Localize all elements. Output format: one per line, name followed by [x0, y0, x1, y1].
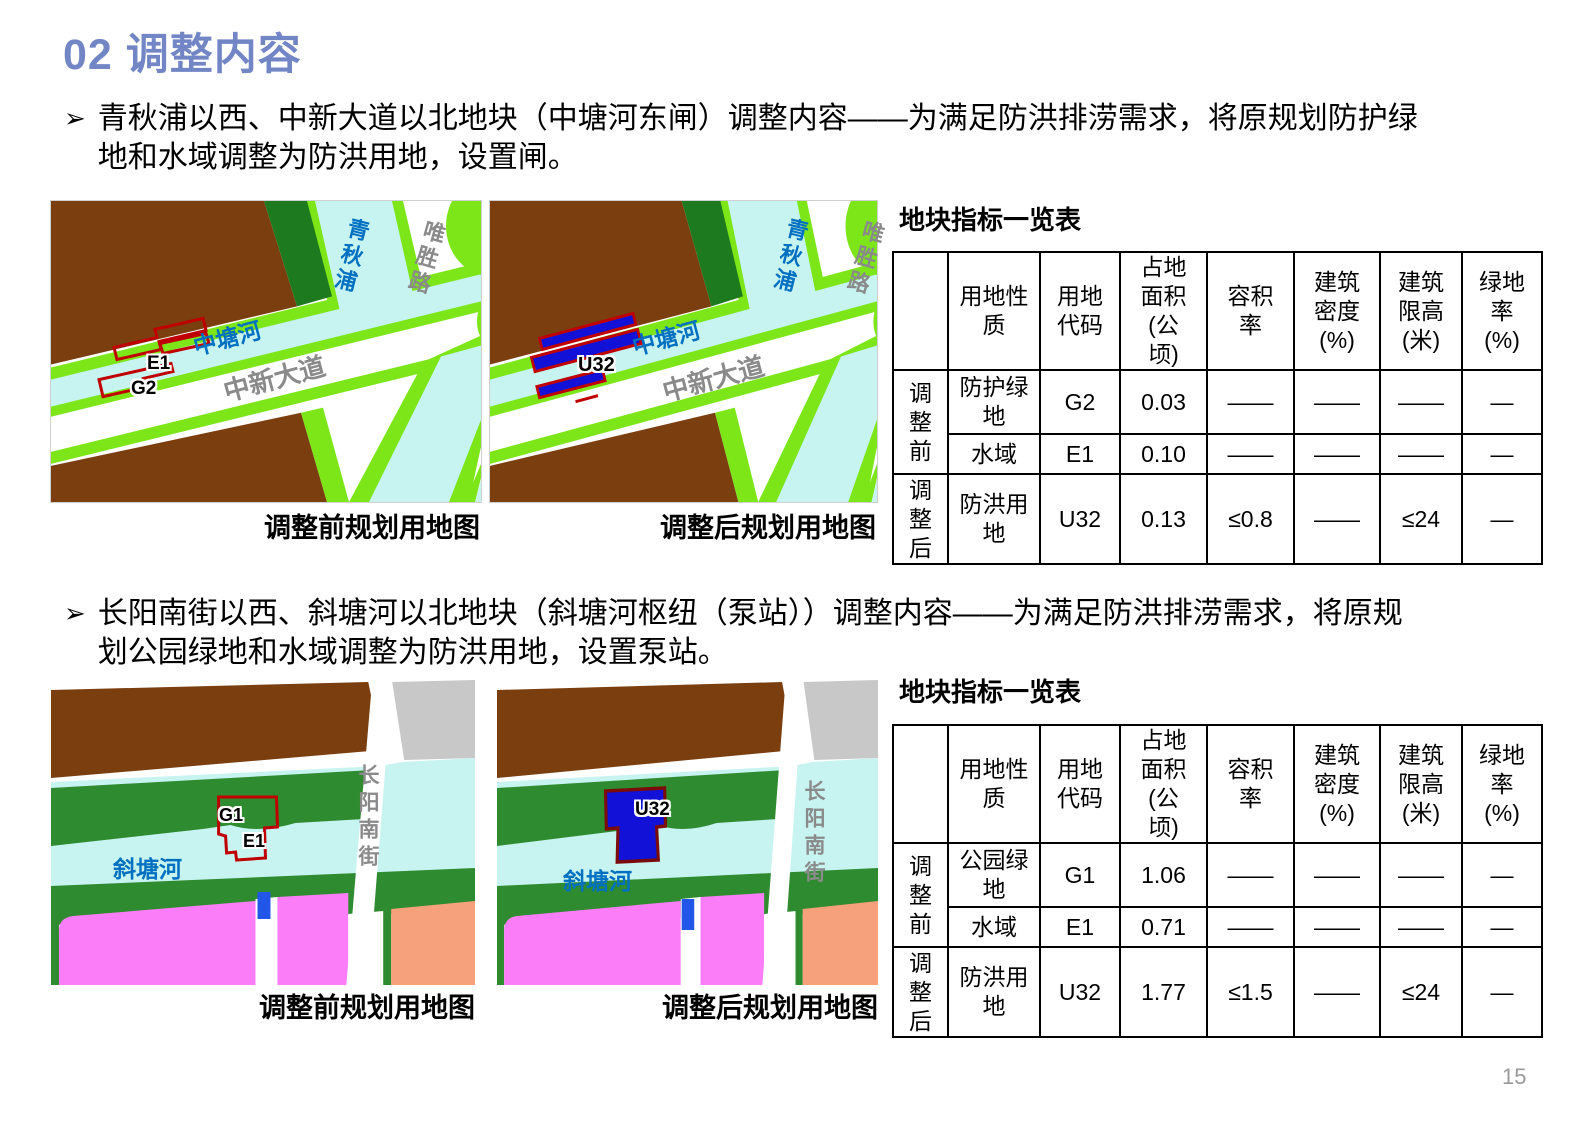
parcel-label-g1: G1 — [219, 805, 243, 826]
table-cell: —— — [1380, 434, 1462, 474]
header-cell: 用地 代码 — [1040, 725, 1120, 843]
map-before-plan-1: 青秋浦 唯胜路 中塘河 中新大道 E1 G2 — [50, 200, 482, 503]
table-cell: —— — [1294, 907, 1380, 947]
table-cell: U32 — [1040, 474, 1120, 564]
table-cell: 0.10 — [1120, 434, 1207, 474]
map-after-plan-2: U32 斜塘河 长阳南街 — [497, 678, 878, 985]
header-cell: 用地性 质 — [948, 725, 1040, 843]
map-before-plan-2: G1 E1 斜塘河 长阳南街 — [51, 678, 475, 985]
page-number: 15 — [1502, 1064, 1526, 1090]
header-cell: 占地 面积 (公 顷) — [1120, 725, 1207, 843]
table-cell: — — [1462, 474, 1542, 564]
table-cell: 0.13 — [1120, 474, 1207, 564]
header-cell: 用地性 质 — [948, 252, 1040, 370]
header-cell: 绿地 率 (%) — [1462, 725, 1542, 843]
parcel-label-u32: U32 — [635, 799, 670, 821]
table-cell: — — [1462, 947, 1542, 1037]
table-cell: —— — [1294, 434, 1380, 474]
caption-before-2: 调整前规划用地图 — [51, 986, 475, 1025]
bullet-arrow-icon: ➢ — [64, 99, 86, 177]
table-cell: — — [1462, 434, 1542, 474]
table-cell: — — [1462, 370, 1542, 434]
table-cell: —— — [1380, 370, 1462, 434]
table-cell: U32 — [1040, 947, 1120, 1037]
table-row: 调 整 后 防洪用 地 U32 1.77 ≤1.5 —— ≤24 — — [893, 947, 1542, 1037]
header-cell: 建筑 密度 (%) — [1294, 725, 1380, 843]
header-cell: 用地 代码 — [1040, 252, 1120, 370]
table-cell: —— — [1294, 947, 1380, 1037]
caption-after-2: 调整后规划用地图 — [497, 986, 878, 1025]
indicator-table-2: 用地性 质 用地 代码 占地 面积 (公 顷) 容积 率 建筑 密度 (%) 建… — [892, 724, 1543, 1038]
table-cell: 1.77 — [1120, 947, 1207, 1037]
table-cell: 1.06 — [1120, 843, 1207, 907]
table-title-2: 地块指标一览表 — [899, 672, 1081, 709]
bullet-2-text: 长阳南街以西、斜塘河以北地块（斜塘河枢纽（泵站））调整内容——为满足防洪排涝需求… — [98, 594, 1510, 672]
table-cell: G2 — [1040, 370, 1120, 434]
land-use-map-graphic — [490, 201, 877, 502]
header-cell — [893, 725, 948, 843]
table-row: 水域 E1 0.10 —— —— —— — — [893, 434, 1542, 474]
river-label-xietanghe: 斜塘河 — [113, 850, 182, 884]
table-cell: 公园绿 地 — [948, 843, 1040, 907]
table-cell: 防护绿 地 — [948, 370, 1040, 434]
bullet-1-text: 青秋浦以西、中新大道以北地块（中塘河东闸）调整内容——为满足防洪排涝需求，将原规… — [98, 99, 1510, 177]
table-cell: —— — [1380, 907, 1462, 947]
group-label-before: 调 整 前 — [893, 370, 948, 474]
table-cell: —— — [1294, 474, 1380, 564]
table-cell: —— — [1207, 907, 1294, 947]
header-cell: 占地 面积 (公 顷) — [1120, 252, 1207, 370]
table-cell: —— — [1294, 843, 1380, 907]
bullet-2: ➢ 长阳南街以西、斜塘河以北地块（斜塘河枢纽（泵站））调整内容——为满足防洪排涝… — [64, 594, 1510, 672]
table-cell: E1 — [1040, 434, 1120, 474]
table-cell: 0.03 — [1120, 370, 1207, 434]
header-cell — [893, 252, 948, 370]
group-label-before: 调 整 前 — [893, 843, 948, 947]
table-cell: 防洪用 地 — [948, 947, 1040, 1037]
table-cell: 防洪用 地 — [948, 474, 1040, 564]
caption-before-1: 调整前规划用地图 — [50, 506, 480, 545]
table-cell: —— — [1207, 843, 1294, 907]
table-cell: —— — [1207, 434, 1294, 474]
table-cell: —— — [1294, 370, 1380, 434]
parcel-label-u32: U32 — [578, 354, 615, 377]
table-row: 调 整 前 防护绿 地 G2 0.03 —— —— —— — — [893, 370, 1542, 434]
bullet-arrow-icon: ➢ — [64, 594, 86, 672]
header-cell: 建筑 限高 (米) — [1380, 252, 1462, 370]
caption-after-1: 调整后规划用地图 — [489, 506, 876, 545]
table-cell: —— — [1207, 370, 1294, 434]
table-cell: —— — [1380, 843, 1462, 907]
group-label-after: 调 整 后 — [893, 947, 948, 1037]
map-after-plan-1: 青秋浦 唯胜路 中塘河 中新大道 U32 — [489, 200, 878, 503]
table-cell: ≤0.8 — [1207, 474, 1294, 564]
table-cell: G1 — [1040, 843, 1120, 907]
parcel-label-g2: G2 — [131, 378, 156, 400]
table-row: 水域 E1 0.71 —— —— —— — — [893, 907, 1542, 947]
table-header-row: 用地性 质 用地 代码 占地 面积 (公 顷) 容积 率 建筑 密度 (%) 建… — [893, 252, 1542, 370]
parcel-label-e1: E1 — [147, 353, 170, 375]
table-cell: ≤24 — [1380, 474, 1462, 564]
header-cell: 建筑 限高 (米) — [1380, 725, 1462, 843]
table-header-row: 用地性 质 用地 代码 占地 面积 (公 顷) 容积 率 建筑 密度 (%) 建… — [893, 725, 1542, 843]
table-cell: 0.71 — [1120, 907, 1207, 947]
table-cell: 水域 — [948, 907, 1040, 947]
table-title-1: 地块指标一览表 — [899, 200, 1081, 237]
header-cell: 绿地 率 (%) — [1462, 252, 1542, 370]
bullet-1: ➢ 青秋浦以西、中新大道以北地块（中塘河东闸）调整内容——为满足防洪排涝需求，将… — [64, 99, 1510, 177]
table-cell: — — [1462, 843, 1542, 907]
road-label-changyangnanjie: 长阳南街 — [352, 764, 382, 872]
page-title: 02 调整内容 — [63, 20, 302, 82]
group-label-after: 调 整 后 — [893, 474, 948, 564]
header-cell: 建筑 密度 (%) — [1294, 252, 1380, 370]
river-label-xietanghe: 斜塘河 — [563, 862, 632, 896]
indicator-table-1: 用地性 质 用地 代码 占地 面积 (公 顷) 容积 率 建筑 密度 (%) 建… — [892, 251, 1543, 565]
table-row: 调 整 前 公园绿 地 G1 1.06 —— —— —— — — [893, 843, 1542, 907]
table-cell: ≤1.5 — [1207, 947, 1294, 1037]
road-label-changyangnanjie: 长阳南街 — [798, 780, 828, 888]
table-cell: 水域 — [948, 434, 1040, 474]
slide: 02 调整内容 ➢ 青秋浦以西、中新大道以北地块（中塘河东闸）调整内容——为满足… — [0, 0, 1587, 1123]
table-cell: ≤24 — [1380, 947, 1462, 1037]
table-row: 调 整 后 防洪用 地 U32 0.13 ≤0.8 —— ≤24 — — [893, 474, 1542, 564]
table-cell: E1 — [1040, 907, 1120, 947]
parcel-label-e1: E1 — [243, 831, 265, 852]
header-cell: 容积 率 — [1207, 252, 1294, 370]
header-cell: 容积 率 — [1207, 725, 1294, 843]
table-cell: — — [1462, 907, 1542, 947]
